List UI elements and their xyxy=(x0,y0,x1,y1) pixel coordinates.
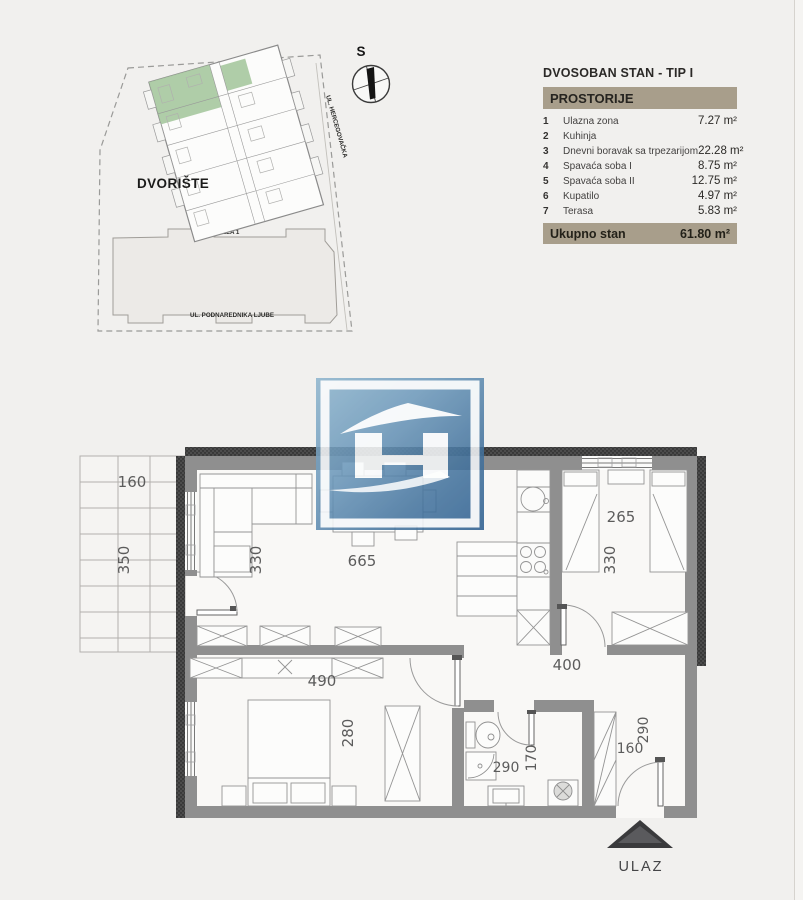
tall-wardrobe xyxy=(385,706,420,801)
rooms-table-header: PROSTORIJE xyxy=(543,87,737,109)
nightstand xyxy=(222,786,246,806)
rooms-table-header-label: PROSTORIJE xyxy=(550,91,634,106)
logo-h-left xyxy=(355,433,382,478)
washing-machine xyxy=(548,780,578,808)
dim-entry-depth: 290 xyxy=(636,717,652,744)
coffee-table xyxy=(214,546,250,572)
room-row: 5 Spavaća soba II 12.75 m² xyxy=(543,174,737,189)
bedroom2-wardrobes xyxy=(190,658,383,678)
compass-north-label: S xyxy=(356,44,365,59)
total-row: Ukupno stan 61.80 m² xyxy=(543,223,737,244)
dim-bedroom1-depth: 330 xyxy=(601,546,619,575)
logo-h-bar xyxy=(382,455,423,465)
total-label: Ukupno stan xyxy=(550,227,626,241)
room-row: 3 Dnevni boravak sa trpezarijom 22.28 m² xyxy=(543,144,737,159)
apartment-type-title: DVOSOBAN STAN - TIP I xyxy=(543,66,737,80)
dim-bedroom2-depth: 280 xyxy=(339,719,357,748)
pillow xyxy=(291,783,325,803)
photo-edge xyxy=(794,0,803,900)
dim-hall-width: 400 xyxy=(553,656,582,674)
rooms-table-body: 1 Ulazna zona 7.27 m² 2 Kuhinja 3 Dnevni… xyxy=(543,109,737,223)
dim-bedroom1-width: 265 xyxy=(607,508,636,526)
dim-living-depth: 330 xyxy=(247,546,265,575)
dim-bathroom-width: 290 xyxy=(493,760,520,776)
dim-bathroom-depth: 170 xyxy=(524,745,540,772)
courtyard-label: DVORIŠTE xyxy=(137,176,209,191)
logo-h-right xyxy=(423,433,448,478)
dim-bedroom2-width: 490 xyxy=(308,672,337,690)
dim-living-width: 665 xyxy=(348,552,377,570)
living-wardrobes xyxy=(197,626,381,646)
bedside-shelf xyxy=(608,470,644,484)
toilet xyxy=(466,722,500,748)
total-value: 61.80 m² xyxy=(680,227,730,241)
dim-terrace-depth: 350 xyxy=(115,546,133,575)
floorplan-page: LAMELA 1 UL. PODNAREDNIKA LJUBE xyxy=(0,0,803,900)
compass-icon xyxy=(353,66,390,103)
apartment-block xyxy=(141,43,331,244)
apartment-info-panel: DVOSOBAN STAN - TIP I PROSTORIJE 1 Ulazn… xyxy=(543,66,737,244)
entrance-label: ULAZ xyxy=(618,859,663,875)
entry-closet xyxy=(594,712,616,806)
pillow xyxy=(253,783,287,803)
shower xyxy=(466,752,496,780)
room-row: 6 Kupatilo 4.97 m² xyxy=(543,189,737,204)
room-row: 1 Ulazna zona 7.27 m² xyxy=(543,114,737,129)
sideboard xyxy=(457,542,517,616)
lamela-building-outline xyxy=(113,229,337,323)
nightstand xyxy=(332,786,356,806)
room-row: 2 Kuhinja xyxy=(543,129,737,144)
entrance-marker: ULAZ xyxy=(607,820,673,875)
street-bottom-label: UL. PODNAREDNIKA LJUBE xyxy=(190,312,274,319)
dim-terrace-width: 160 xyxy=(118,473,147,491)
bathroom-sink xyxy=(488,786,524,808)
bedroom1-wardrobe xyxy=(612,612,688,645)
brand-logo xyxy=(316,378,484,530)
dining-chair xyxy=(352,532,374,546)
room-row: 4 Spavaća soba I 8.75 m² xyxy=(543,159,737,174)
room-row: 7 Terasa 5.83 m² xyxy=(543,204,737,219)
kitchen xyxy=(517,470,550,645)
site-plan: LAMELA 1 UL. PODNAREDNIKA LJUBE xyxy=(85,38,397,344)
